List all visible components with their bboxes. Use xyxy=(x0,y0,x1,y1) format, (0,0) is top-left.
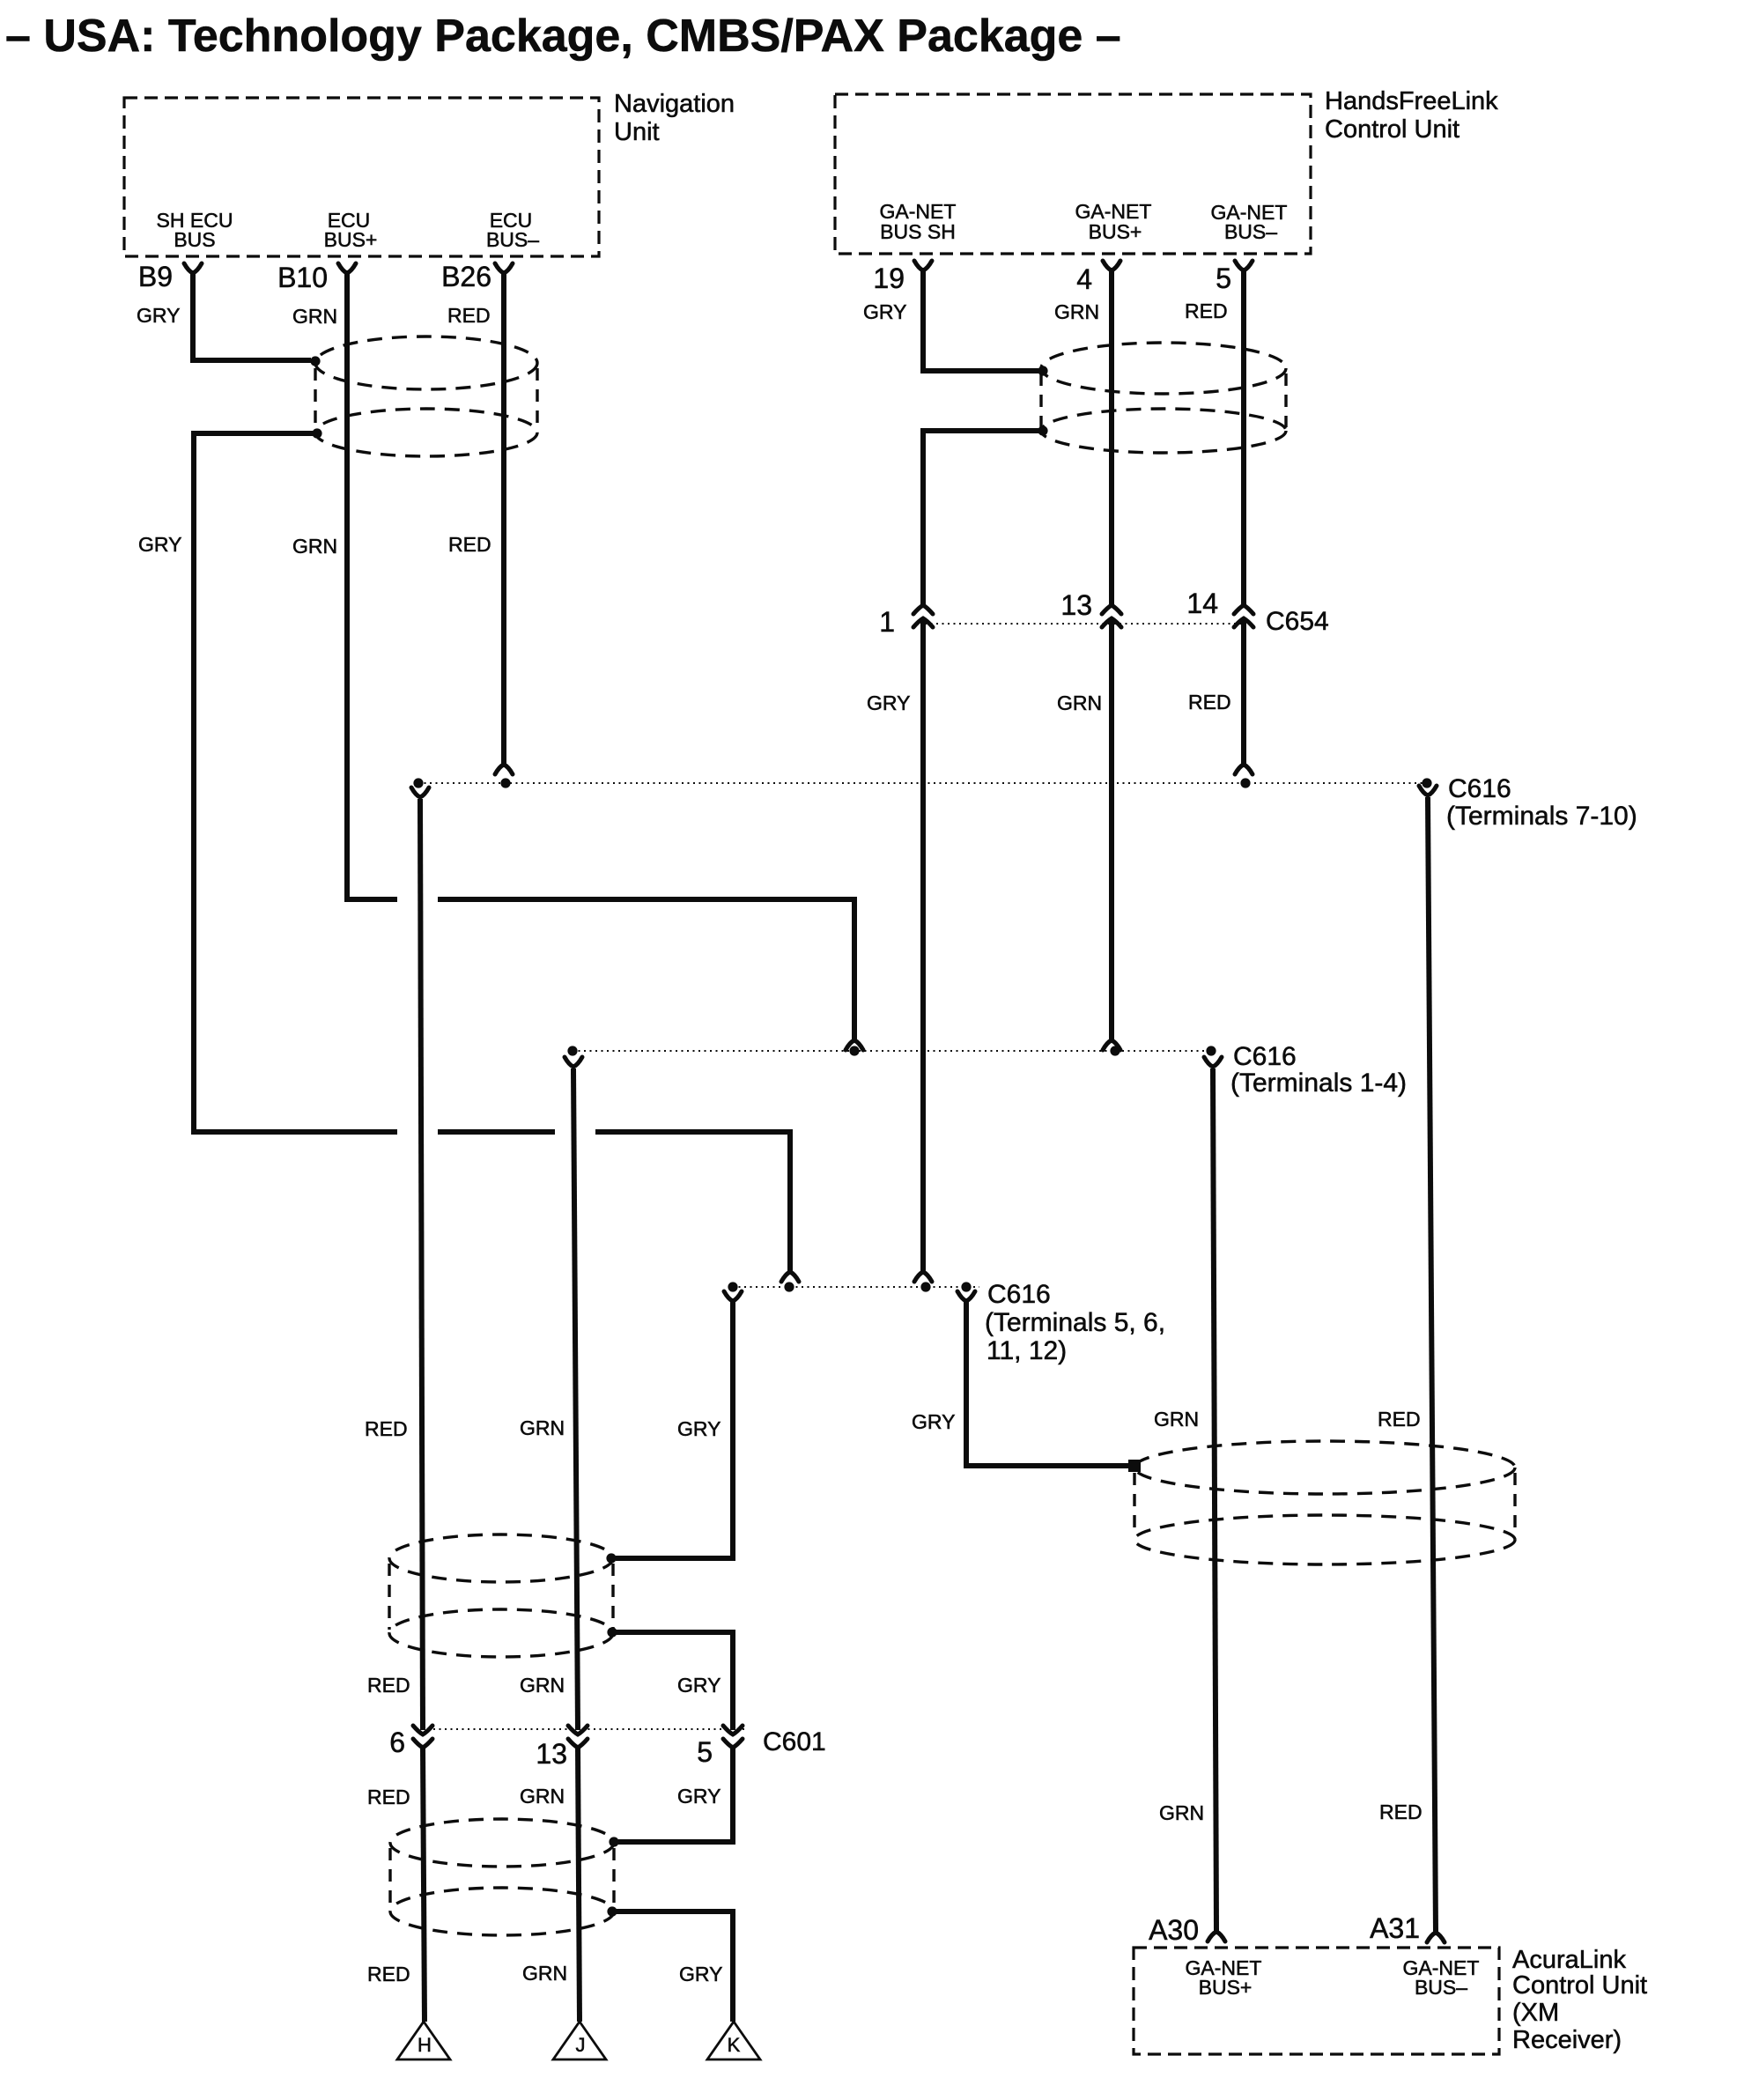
svg-text:C601: C601 xyxy=(763,1727,826,1756)
svg-text:C616: C616 xyxy=(1448,774,1511,803)
svg-text:H: H xyxy=(418,2034,432,2056)
svg-text:(XM: (XM xyxy=(1512,1999,1559,2027)
svg-text:RED: RED xyxy=(365,1417,408,1440)
svg-text:B10: B10 xyxy=(277,262,328,293)
svg-text:GRN: GRN xyxy=(520,1416,565,1439)
svg-text:– USA: Technology Package, CMB: – USA: Technology Package, CMBS/PAX Pack… xyxy=(5,11,1121,62)
svg-text:BUS: BUS xyxy=(174,228,215,251)
svg-text:GRN: GRN xyxy=(520,1785,565,1808)
svg-text:GRN: GRN xyxy=(1159,1801,1204,1824)
svg-text:BUS–: BUS– xyxy=(1415,1976,1467,1999)
svg-text:(Terminals 5, 6,: (Terminals 5, 6, xyxy=(985,1308,1165,1337)
svg-text:A31: A31 xyxy=(1370,1912,1420,1944)
svg-text:RED: RED xyxy=(367,1963,410,1985)
svg-text:19: 19 xyxy=(873,262,905,294)
svg-text:5: 5 xyxy=(697,1736,713,1768)
svg-text:GRY: GRY xyxy=(138,533,181,556)
svg-text:Control Unit: Control Unit xyxy=(1512,1971,1647,2000)
svg-text:RED: RED xyxy=(367,1786,410,1808)
svg-text:RED: RED xyxy=(1378,1408,1421,1431)
svg-text:GRY: GRY xyxy=(867,691,910,714)
svg-text:RED: RED xyxy=(367,1674,410,1697)
svg-text:GRN: GRN xyxy=(520,1674,565,1697)
svg-text:RED: RED xyxy=(1379,1801,1423,1823)
svg-text:A30: A30 xyxy=(1149,1914,1199,1946)
svg-text:GRN: GRN xyxy=(292,535,337,558)
svg-text:GRN: GRN xyxy=(1054,300,1099,323)
svg-text:C654: C654 xyxy=(1266,607,1329,636)
svg-text:AcuraLink: AcuraLink xyxy=(1512,1946,1626,1974)
svg-text:K: K xyxy=(728,2034,741,2056)
svg-text:GRY: GRY xyxy=(137,304,180,327)
svg-text:GRY: GRY xyxy=(912,1410,955,1433)
svg-text:C616: C616 xyxy=(1233,1042,1297,1071)
svg-text:11, 12): 11, 12) xyxy=(987,1336,1067,1365)
svg-text:13: 13 xyxy=(536,1738,567,1770)
svg-text:GRN: GRN xyxy=(1057,691,1102,714)
svg-text:13: 13 xyxy=(1060,589,1092,621)
svg-text:(Terminals 7-10): (Terminals 7-10) xyxy=(1446,802,1637,831)
svg-text:GRY: GRY xyxy=(677,1417,721,1440)
svg-text:GRN: GRN xyxy=(522,1962,567,1985)
svg-text:5: 5 xyxy=(1216,262,1231,294)
svg-text:14: 14 xyxy=(1186,588,1218,619)
svg-text:Receiver): Receiver) xyxy=(1512,2026,1622,2054)
svg-text:BUS+: BUS+ xyxy=(1089,220,1142,243)
svg-text:1: 1 xyxy=(879,606,895,638)
svg-text:GRY: GRY xyxy=(679,1963,722,1985)
svg-text:GRY: GRY xyxy=(677,1785,721,1808)
svg-text:Unit: Unit xyxy=(614,118,660,146)
svg-text:(Terminals 1-4): (Terminals 1-4) xyxy=(1230,1068,1407,1098)
svg-text:BUS–: BUS– xyxy=(1224,220,1277,243)
svg-text:B9: B9 xyxy=(138,261,173,292)
svg-text:GRY: GRY xyxy=(863,300,906,323)
svg-text:RED: RED xyxy=(448,533,491,556)
svg-text:BUS+: BUS+ xyxy=(1199,1976,1253,1999)
svg-text:J: J xyxy=(576,2034,586,2056)
svg-text:B26: B26 xyxy=(441,261,491,292)
svg-text:HandsFreeLink: HandsFreeLink xyxy=(1325,87,1498,115)
svg-text:RED: RED xyxy=(447,304,491,327)
svg-text:BUS SH: BUS SH xyxy=(880,220,956,243)
svg-text:BUS+: BUS+ xyxy=(324,228,378,251)
svg-text:BUS–: BUS– xyxy=(486,228,539,251)
svg-text:6: 6 xyxy=(389,1727,405,1758)
svg-text:Navigation: Navigation xyxy=(614,90,735,118)
svg-text:GRN: GRN xyxy=(292,305,337,328)
svg-text:RED: RED xyxy=(1188,691,1231,714)
svg-text:4: 4 xyxy=(1076,263,1092,295)
svg-text:C616: C616 xyxy=(987,1280,1051,1309)
svg-text:GRN: GRN xyxy=(1154,1408,1199,1431)
svg-text:RED: RED xyxy=(1185,299,1228,322)
svg-text:GRY: GRY xyxy=(677,1674,721,1697)
svg-text:Control Unit: Control Unit xyxy=(1325,115,1459,144)
